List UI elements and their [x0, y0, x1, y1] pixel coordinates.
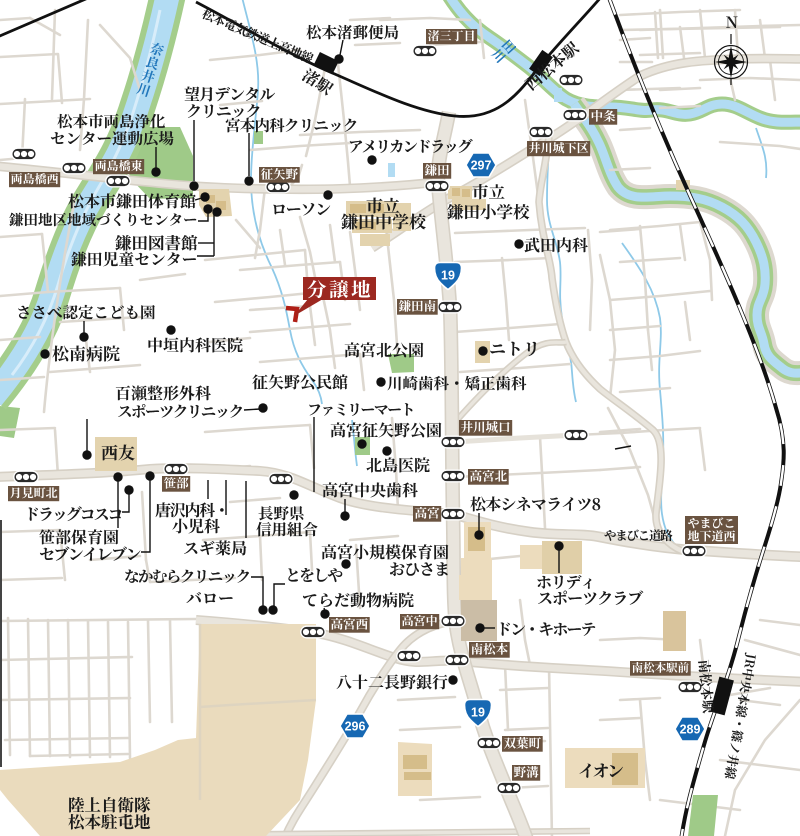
svg-text:296: 296 [345, 720, 366, 734]
svg-text:19: 19 [441, 269, 455, 283]
svg-text:297: 297 [471, 159, 492, 173]
svg-text:19: 19 [471, 706, 485, 720]
svg-text:289: 289 [680, 723, 701, 737]
